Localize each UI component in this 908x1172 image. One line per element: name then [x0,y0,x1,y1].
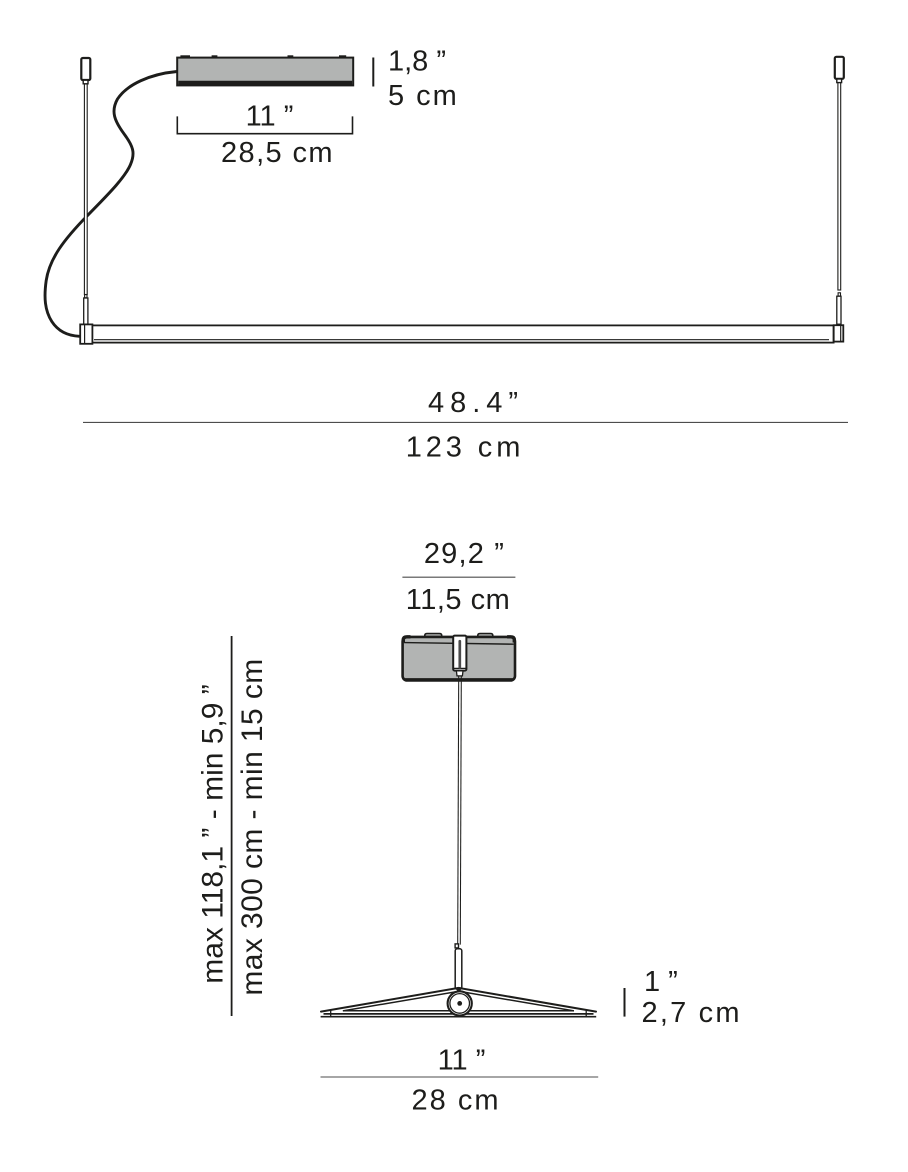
svg-text:123 cm: 123 cm [406,431,525,463]
svg-text:11 ”: 11 ” [438,1044,486,1076]
svg-text:48.4”: 48.4” [428,387,524,419]
svg-text:29,2 ”: 29,2 ” [424,538,505,570]
svg-text:2,7 cm: 2,7 cm [642,997,742,1029]
svg-text:11,5 cm: 11,5 cm [406,584,511,616]
svg-text:11 ”: 11 ” [246,100,294,132]
svg-text:28,5 cm: 28,5 cm [221,137,334,169]
svg-text:28 cm: 28 cm [412,1085,501,1117]
svg-text:1 ”: 1 ” [644,966,678,998]
svg-text:1,8 ”: 1,8 ” [388,45,446,77]
svg-text:max 118,1 ” - min 5,9 ”: max 118,1 ” - min 5,9 ” [197,684,230,984]
svg-text:max 300 cm - min 15 cm: max 300 cm - min 15 cm [236,658,269,995]
svg-text:5 cm: 5 cm [388,80,459,112]
